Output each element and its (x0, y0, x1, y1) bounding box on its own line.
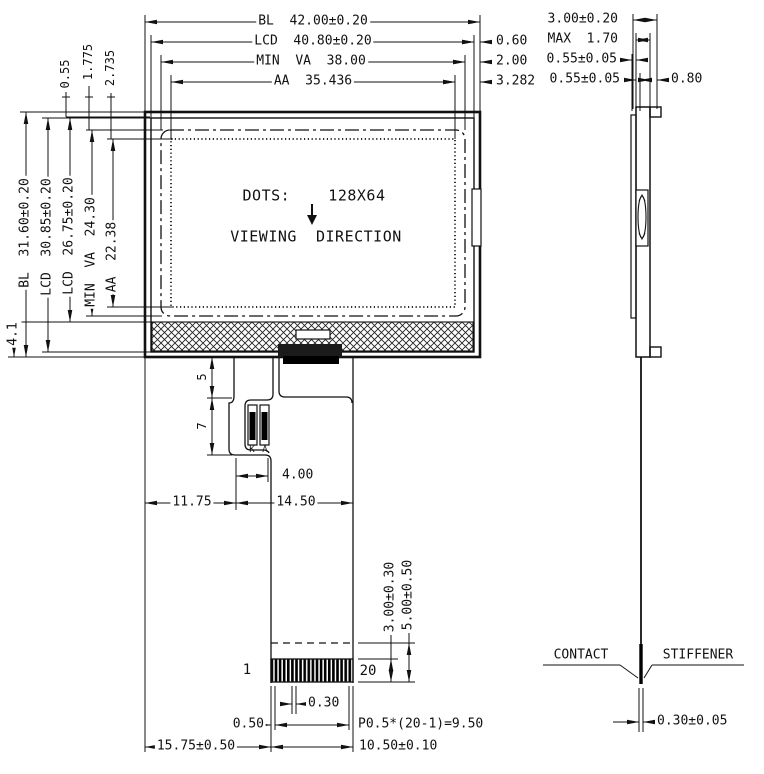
dim-side-glass-2: 0.55±0.05 (548, 73, 622, 88)
lcd-module-technical-drawing: BL 42.00±0.20 LCD 40.80±0.20 MIN VA 38.0… (0, 0, 764, 774)
led-cathode-label: K (249, 445, 254, 455)
dim-minva-height: MIN VA 24.30 (85, 195, 100, 309)
dim-bl-width: BL 42.00±0.20 (256, 15, 370, 30)
dim-offset-lcd: 0.60 (494, 35, 529, 50)
dim-branch-width: 4.00 (280, 469, 315, 484)
dots-resolution-text: DOTS: 128X64 (243, 187, 386, 204)
dim-side-max-thickness: MAX 1.70 (546, 33, 620, 48)
drawing-geometry (0, 0, 764, 774)
dim-offset-minva: 2.00 (494, 55, 529, 70)
dim-contact-width: 0.30 (306, 697, 341, 712)
contact-label: CONTACT (554, 649, 609, 664)
led-anode-label: A (262, 445, 267, 455)
dim-minva-width: MIN VA 38.00 (254, 55, 368, 70)
dim-branch-height: 7 (196, 420, 210, 431)
dim-offset-top-1: 0.55 (59, 58, 73, 91)
connector-contacts (271, 659, 353, 682)
side-bottom-tab (650, 347, 661, 357)
dim-hatch-height: 4.1 (7, 320, 22, 347)
edge-notch (472, 189, 481, 246)
fpc-tail (229, 357, 353, 683)
side-top-tab (650, 107, 661, 117)
side-dimensions (543, 14, 744, 732)
dim-contact-length: 3.00±0.30 (384, 560, 399, 634)
dim-stub-offset: 11.75 (170, 496, 213, 511)
fpc-left-outline (229, 357, 271, 683)
dim-offset-top-3: 2.735 (104, 48, 118, 88)
backlight-slot (296, 330, 330, 339)
dim-offset-top-2: 1.775 (82, 42, 96, 82)
tail-dimensions (145, 357, 415, 752)
dim-tail-width: 10.50±0.10 (357, 740, 439, 755)
stiffener-label: STIFFENER (663, 649, 733, 664)
pin-1-label: 1 (243, 662, 251, 678)
fpc-braid-lower (283, 356, 339, 364)
dim-contact-pitch: P0.5*(20-1)=9.50 (356, 718, 485, 733)
viewing-direction-arrow (307, 204, 317, 225)
dim-stiffener-length: 5.00±0.50 (402, 558, 417, 632)
fpc-braid-upper (278, 344, 342, 357)
dim-lcd-width: LCD 40.80±0.20 (252, 35, 373, 50)
dim-tip-thickness: 0.30±0.05 (655, 715, 729, 730)
dim-aa-height: AA 22.38 (106, 220, 121, 294)
dim-tail-span: 14.50 (274, 496, 317, 511)
dim-bl-height: BL 31.60±0.20 (19, 176, 34, 290)
side-view (631, 107, 661, 684)
dim-lcd-height-outer: LCD 30.85±0.20 (41, 176, 56, 297)
dim-stub-height: 5 (196, 371, 210, 382)
dim-tail-offset: 15.75±0.50 (155, 740, 237, 755)
dim-side-total-thickness: 3.00±0.20 (546, 13, 620, 28)
dim-lcd-height-inner: LCD 26.75±0.20 (63, 175, 78, 296)
led-pads (248, 405, 269, 445)
dim-edge-margin: 0.50 (231, 718, 266, 733)
dim-side-glass-1: 0.55±0.05 (545, 53, 619, 68)
side-stiffener (639, 644, 642, 684)
pin-20-label: 20 (358, 663, 379, 679)
viewing-direction-text: VIEWING DIRECTION (230, 228, 402, 245)
dim-offset-aa: 3.282 (494, 75, 537, 90)
dim-side-tab: 0.80 (669, 73, 704, 88)
dim-aa-width: AA 35.436 (272, 75, 354, 90)
